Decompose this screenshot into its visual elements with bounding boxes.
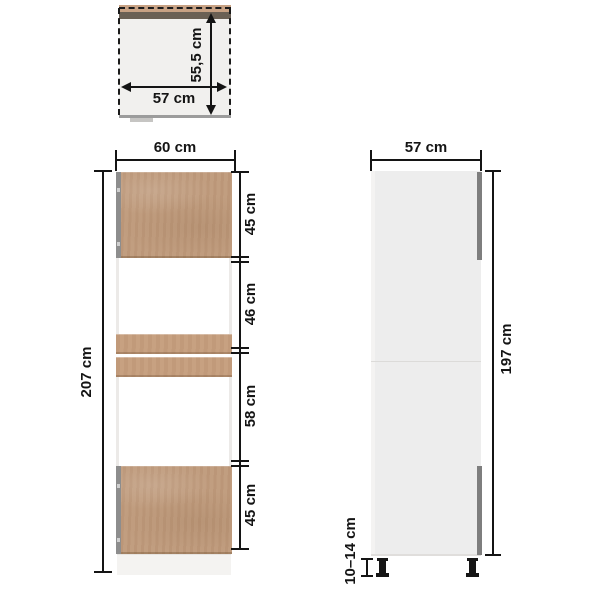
middle-rail-lower xyxy=(116,357,232,377)
hinge-dot-icon xyxy=(117,188,120,192)
dimension-line xyxy=(102,171,104,572)
foot-stem xyxy=(379,561,386,573)
section-label-4: 45 cm xyxy=(243,475,259,535)
plinth xyxy=(117,554,231,575)
side-height-label: 197 cm xyxy=(499,309,515,389)
section-tick xyxy=(231,460,249,462)
hinge-strip xyxy=(116,172,121,258)
carcass-left-edge xyxy=(116,258,119,334)
side-depth-label: 57 cm xyxy=(376,140,476,156)
top-view-dashed-border-left xyxy=(118,8,120,115)
lower-door xyxy=(116,466,232,554)
section-tick xyxy=(231,347,249,349)
lower-door-edge xyxy=(477,466,482,555)
middle-rail-upper xyxy=(116,334,232,354)
hinge-dot-icon xyxy=(117,538,120,542)
top-view-dashed-border-top xyxy=(119,7,231,9)
carcass-left-edge xyxy=(116,377,119,466)
front-height-label: 207 cm xyxy=(79,332,95,412)
section-tick xyxy=(231,465,249,467)
section-tick xyxy=(231,256,249,258)
foot-base xyxy=(376,573,389,577)
dimension-line xyxy=(492,171,494,556)
section-tick xyxy=(231,352,249,354)
hinge-dot-icon xyxy=(117,242,120,246)
hinge-dot-icon xyxy=(117,484,120,488)
section-label-1: 45 cm xyxy=(243,184,259,244)
upper-door xyxy=(116,172,232,258)
hinge-strip xyxy=(116,466,121,554)
carcass-right-edge xyxy=(229,258,232,334)
front-width-label: 60 cm xyxy=(125,140,225,156)
upper-door-edge xyxy=(477,172,482,260)
section-tick xyxy=(231,261,249,263)
cabinet-dimension-diagram: 57 cm 55,5 cm 60 cm 207 cm xyxy=(0,0,600,600)
dimension-line xyxy=(370,159,482,161)
foot-stem xyxy=(469,561,476,573)
section-tick xyxy=(231,548,249,550)
dimension-line xyxy=(210,21,212,107)
top-view-handle-tab xyxy=(130,118,153,122)
side-panel-divider xyxy=(371,361,481,362)
top-view-dashed-border-right xyxy=(229,8,231,115)
section-label-3: 58 cm xyxy=(243,376,259,436)
foot-base xyxy=(466,573,479,577)
dimension-line xyxy=(239,172,241,550)
section-tick xyxy=(231,171,249,173)
dimension-line xyxy=(115,159,236,161)
dimension-line xyxy=(366,559,368,576)
section-label-2: 46 cm xyxy=(243,274,259,334)
top-view-depth-label: 55,5 cm xyxy=(189,15,205,95)
dimension-line xyxy=(129,86,219,88)
feet-height-label: 10–14 cm xyxy=(343,506,359,596)
carcass-right-edge xyxy=(229,377,232,466)
side-panel xyxy=(371,171,481,556)
